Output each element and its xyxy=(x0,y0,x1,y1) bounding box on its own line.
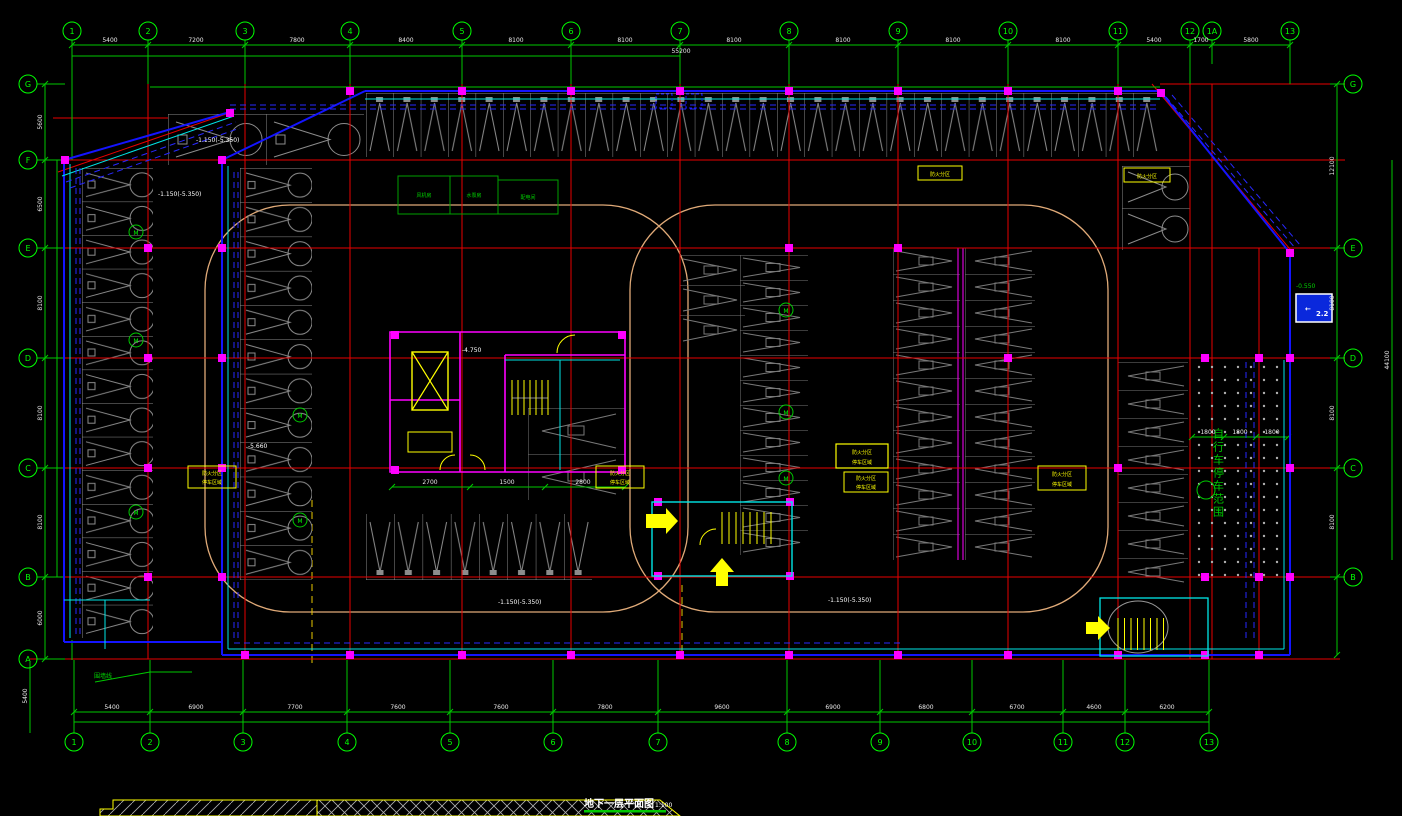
dim-top: 8100 xyxy=(1055,37,1070,44)
grid-bubble-label: G xyxy=(25,80,31,89)
dim-left: 8100 xyxy=(37,514,44,529)
m-label: M xyxy=(297,413,302,420)
grid-bubble-label: E xyxy=(25,244,30,253)
dim-core: 2700 xyxy=(422,479,437,486)
dim-left: 6000 xyxy=(37,610,44,625)
grid-bubble-label: 5 xyxy=(447,738,452,747)
stall-row-north xyxy=(366,93,1160,157)
dim-bottom: 7600 xyxy=(390,704,405,711)
zone-box-line1: 防火分区 xyxy=(610,470,630,477)
dim-bike: 1800 xyxy=(1264,429,1279,436)
room-3-label: 配电间 xyxy=(520,194,535,201)
m-label: M xyxy=(297,518,302,525)
stall-row-south xyxy=(366,514,592,580)
zone-box-line2: 停车区域 xyxy=(1052,481,1072,488)
grid-bubble-label: D xyxy=(1350,354,1356,363)
grid-bubble-label: 8 xyxy=(786,27,791,36)
stall-column-west-annex xyxy=(82,168,153,638)
grid-bubble-label: 2 xyxy=(147,738,152,747)
grid-bubble-label: A xyxy=(25,655,31,664)
dim-right: 8100 xyxy=(1329,295,1336,310)
dim-top-total: 55200 xyxy=(671,48,690,55)
grid-bubble-label: 13 xyxy=(1285,27,1295,36)
level-note: -5.660 xyxy=(248,443,268,450)
stall-bank-c xyxy=(965,248,1035,560)
dim-right: 8100 xyxy=(1329,405,1336,420)
grid-bubble-label: 12 xyxy=(1185,27,1195,36)
m-label: M xyxy=(783,308,788,315)
grid-bubble-label: 10 xyxy=(967,738,977,747)
dim-bottom: 7800 xyxy=(597,704,612,711)
stall-bank-a xyxy=(740,255,808,555)
dim-bike: 1800 xyxy=(1232,429,1247,436)
room-2-label: 水泵房 xyxy=(466,192,481,199)
grid-bubble-label: 3 xyxy=(242,27,247,36)
dim-top: 1700 xyxy=(1193,37,1208,44)
dim-right: 12100 xyxy=(1329,156,1336,175)
title-text: 地下一层平面图 xyxy=(584,797,654,810)
grid-bubble-label: 3 xyxy=(240,738,245,747)
m-label: M xyxy=(133,230,138,237)
dim-top: 8400 xyxy=(398,37,413,44)
dim-top: 5800 xyxy=(1243,37,1258,44)
dim-bottom: 6900 xyxy=(188,704,203,711)
grid-bubble-label: 9 xyxy=(877,738,882,747)
dim-bottom: 5400 xyxy=(104,704,119,711)
grid-bubble-label: 7 xyxy=(677,27,682,36)
dim-bottom: 9600 xyxy=(714,704,729,711)
room-1-label: 风机房 xyxy=(416,192,431,199)
stall-bank-mid xyxy=(680,255,745,345)
zone-box-line2: 停车区域 xyxy=(852,459,872,466)
dim-left: 5600 xyxy=(37,114,44,129)
zone-box-line1: 防火分区 xyxy=(930,171,950,178)
sign-arrow-icon: ← xyxy=(1305,305,1311,313)
grid-bubble-label: 11 xyxy=(1113,27,1123,36)
legend-hatch-left xyxy=(100,800,317,816)
fence-label: 围墙线 xyxy=(94,672,112,680)
dim-top: 8100 xyxy=(617,37,632,44)
grid-bubble-label: G xyxy=(1350,80,1356,89)
grid-bubble-label: E xyxy=(1350,244,1355,253)
grid-bubble-label: 8 xyxy=(784,738,789,747)
dim-top: 5400 xyxy=(102,37,117,44)
title-scale: 1:100 xyxy=(655,802,672,809)
dim-top: 7200 xyxy=(188,37,203,44)
grid-bubble-label: 6 xyxy=(568,27,573,36)
dim-top: 8100 xyxy=(835,37,850,44)
grid-bubble-label: 7 xyxy=(655,738,660,747)
level-note: -4.750 xyxy=(462,347,482,354)
dim-bottom: 4600 xyxy=(1086,704,1101,711)
dim-left-outer: 5400 xyxy=(22,688,29,703)
bike-dotted-zone xyxy=(1192,360,1288,578)
elevation-note: -1.150(-5.350) xyxy=(196,137,239,144)
stall-bank-core-east xyxy=(528,408,625,500)
dim-bottom: 6800 xyxy=(918,704,933,711)
cad-canvas: 风机房 水泵房 配电间 自行车停车范围 ← 2.2 -0.550 防火分区停车区… xyxy=(0,0,1402,816)
grid-bubble-label: 5 xyxy=(459,27,464,36)
stall-bank-b xyxy=(893,248,960,560)
grid-bubble-label: 12 xyxy=(1120,738,1130,747)
dim-left: 6500 xyxy=(37,196,44,211)
dim-core: 2800 xyxy=(575,479,590,486)
zone-box-line2: 停车区域 xyxy=(202,479,222,486)
m-label: M xyxy=(133,510,138,517)
grid-bubble-label: F xyxy=(26,156,31,165)
zone-box-line1: 防火分区 xyxy=(852,449,872,456)
dim-right: 8100 xyxy=(1329,514,1336,529)
grid-bubble-label: 10 xyxy=(1003,27,1013,36)
dim-top: 7800 xyxy=(289,37,304,44)
grid-bubble-label: 6 xyxy=(550,738,555,747)
m-label: M xyxy=(783,476,788,483)
grid-bubble-label: 2 xyxy=(145,27,150,36)
grid-bubble-label: B xyxy=(1350,573,1356,582)
dim-left: 8100 xyxy=(37,295,44,310)
dim-right-total: 44100 xyxy=(1384,350,1391,369)
zone-box-line1: 防火分区 xyxy=(856,475,876,482)
grid-bubble-label: C xyxy=(1350,464,1356,473)
elevation-note: -1.150(-5.350) xyxy=(158,191,201,198)
dim-left: 8100 xyxy=(37,405,44,420)
floorplan-drawing: 风机房 水泵房 配电间 自行车停车范围 ← 2.2 -0.550 防火分区停车区… xyxy=(0,0,1402,816)
zone-box-line2: 停车区域 xyxy=(856,484,876,491)
dim-core: 1500 xyxy=(499,479,514,486)
title-underline xyxy=(584,810,666,813)
grid-bubble-label: 13 xyxy=(1204,738,1214,747)
dim-top: 8100 xyxy=(945,37,960,44)
grid-bubble-label: 4 xyxy=(347,27,352,36)
dim-top: 5400 xyxy=(1146,37,1161,44)
zone-box-line2: 停车区域 xyxy=(610,479,630,486)
dim-bottom: 6700 xyxy=(1009,704,1024,711)
grid-bubble-label: B xyxy=(25,573,31,582)
grid-bubble-label: 1 xyxy=(69,27,74,36)
bike-area-label: 自行车停车范围 xyxy=(1212,428,1225,519)
dim-bottom: 7600 xyxy=(493,704,508,711)
dim-bottom: 7700 xyxy=(287,704,302,711)
grid-bubble-label: 1 xyxy=(71,738,76,747)
grid-bubble-label: D xyxy=(25,354,31,363)
zone-box-line1: 防火分区 xyxy=(1052,471,1072,478)
elevation-note: -1.150(-5.350) xyxy=(498,599,541,606)
dim-top: 8100 xyxy=(508,37,523,44)
grid-bubble-label: 11 xyxy=(1058,738,1068,747)
grid-bubble-label: 4 xyxy=(344,738,349,747)
stall-bank-d xyxy=(1118,362,1188,586)
grid-bubble-label: 1A xyxy=(1207,27,1218,36)
dim-bottom: 6200 xyxy=(1159,704,1174,711)
sign-text: 2.2 xyxy=(1316,310,1329,318)
dim-bike: 1800 xyxy=(1200,429,1215,436)
dim-bottom: 6900 xyxy=(825,704,840,711)
zone-box-line1: 防火分区 xyxy=(1137,173,1157,180)
m-label: M xyxy=(133,338,138,345)
zone-box-line1: 防火分区 xyxy=(202,470,222,477)
sign-elevation: -0.550 xyxy=(1296,283,1316,290)
elevation-note: -1.150(-5.350) xyxy=(828,597,871,604)
grid-bubble-label: C xyxy=(25,464,31,473)
grid-bubble-label: 9 xyxy=(895,27,900,36)
dim-top: 8100 xyxy=(726,37,741,44)
m-label: M xyxy=(783,410,788,417)
